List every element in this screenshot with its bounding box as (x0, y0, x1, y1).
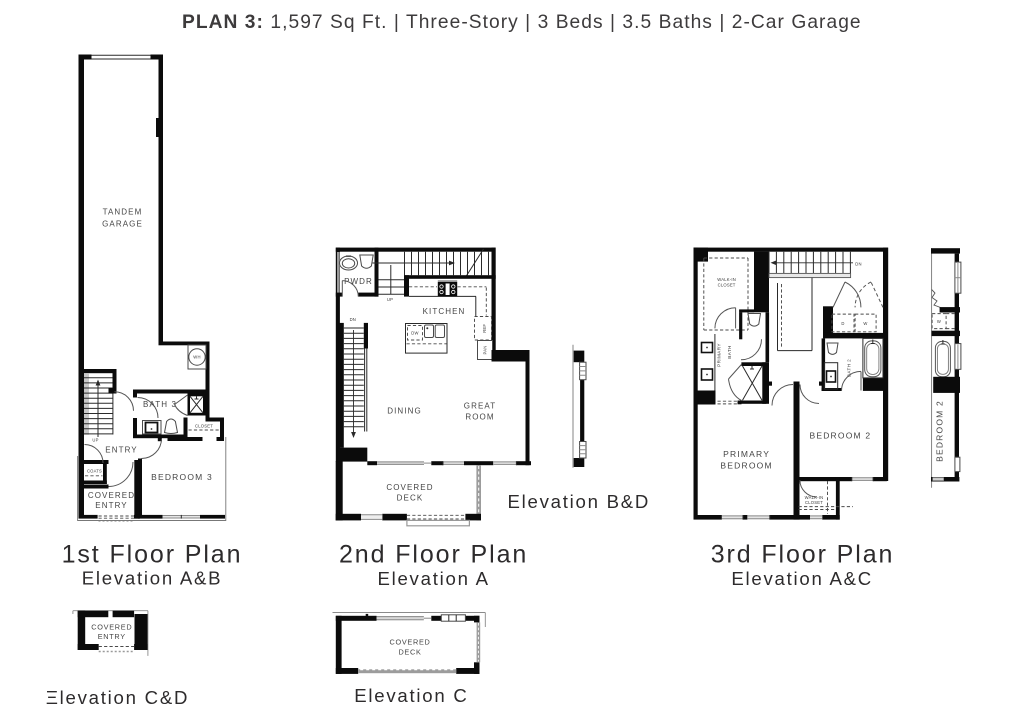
svg-text:Elevation A: Elevation A (377, 568, 489, 589)
svg-text:CLOSET: CLOSET (195, 423, 213, 428)
svg-text:CLOSET: CLOSET (718, 283, 736, 288)
svg-text:COVERED: COVERED (88, 491, 135, 500)
svg-text:WH: WH (193, 355, 200, 360)
svg-text:COVERED: COVERED (390, 638, 431, 647)
svg-text:BEDROOM 3: BEDROOM 3 (151, 472, 213, 482)
svg-text:GREAT: GREAT (464, 401, 496, 410)
svg-text:BEDROOM 2: BEDROOM 2 (809, 431, 871, 441)
svg-text:BATH 3: BATH 3 (143, 400, 177, 409)
svg-text:DN: DN (350, 317, 356, 322)
svg-text:CLOSET: CLOSET (805, 500, 823, 505)
svg-text:PAN: PAN (483, 346, 488, 355)
svg-text:DINING: DINING (387, 407, 422, 416)
svg-text:DN: DN (855, 261, 861, 266)
svg-text:2nd Floor Plan: 2nd Floor Plan (339, 541, 528, 569)
svg-text:BEDROOM: BEDROOM (720, 460, 772, 470)
svg-text:REF: REF (482, 324, 487, 333)
svg-text:DECK: DECK (397, 493, 424, 502)
svg-text:PRIMARY: PRIMARY (723, 449, 770, 459)
svg-text:COVERED: COVERED (386, 483, 433, 492)
svg-text:BATH: BATH (727, 345, 732, 359)
svg-text:PRIMARY: PRIMARY (717, 343, 722, 367)
svg-text:DECK: DECK (398, 648, 421, 657)
svg-text:W: W (937, 319, 941, 324)
svg-text:1st Floor Plan: 1st Floor Plan (62, 541, 243, 569)
svg-text:PLAN 3: 1,597 Sq Ft. | Three-S: PLAN 3: 1,597 Sq Ft. | Three-Story | 3 B… (182, 12, 862, 33)
svg-text:TANDEM: TANDEM (103, 208, 143, 217)
svg-text:3rd Floor Plan: 3rd Floor Plan (711, 541, 895, 569)
svg-text:WALK-IN: WALK-IN (717, 277, 736, 282)
svg-text:ENTRY: ENTRY (95, 501, 127, 510)
svg-text:BEDROOM 2: BEDROOM 2 (935, 400, 945, 462)
svg-text:COVERED: COVERED (91, 622, 132, 631)
svg-text:ENTRY: ENTRY (98, 632, 126, 641)
svg-text:UP: UP (92, 438, 98, 443)
svg-text:Elevation A&C: Elevation A&C (731, 568, 873, 589)
svg-text:W: W (863, 321, 867, 326)
svg-text:D: D (841, 321, 844, 326)
svg-text:GARAGE: GARAGE (102, 220, 143, 229)
svg-text:Elevation A&B: Elevation A&B (82, 568, 223, 589)
svg-text:Elevation C: Elevation C (354, 685, 468, 706)
svg-text:ROOM: ROOM (465, 413, 494, 422)
svg-text:Ξlevation C&D: Ξlevation C&D (46, 687, 189, 708)
svg-text:ENTRY: ENTRY (105, 445, 137, 454)
svg-text:KITCHEN: KITCHEN (423, 307, 466, 316)
svg-text:COATS: COATS (87, 469, 102, 474)
svg-text:DW: DW (411, 331, 418, 336)
svg-text:UP: UP (387, 297, 393, 302)
svg-text:Elevation B&D: Elevation B&D (507, 491, 650, 512)
